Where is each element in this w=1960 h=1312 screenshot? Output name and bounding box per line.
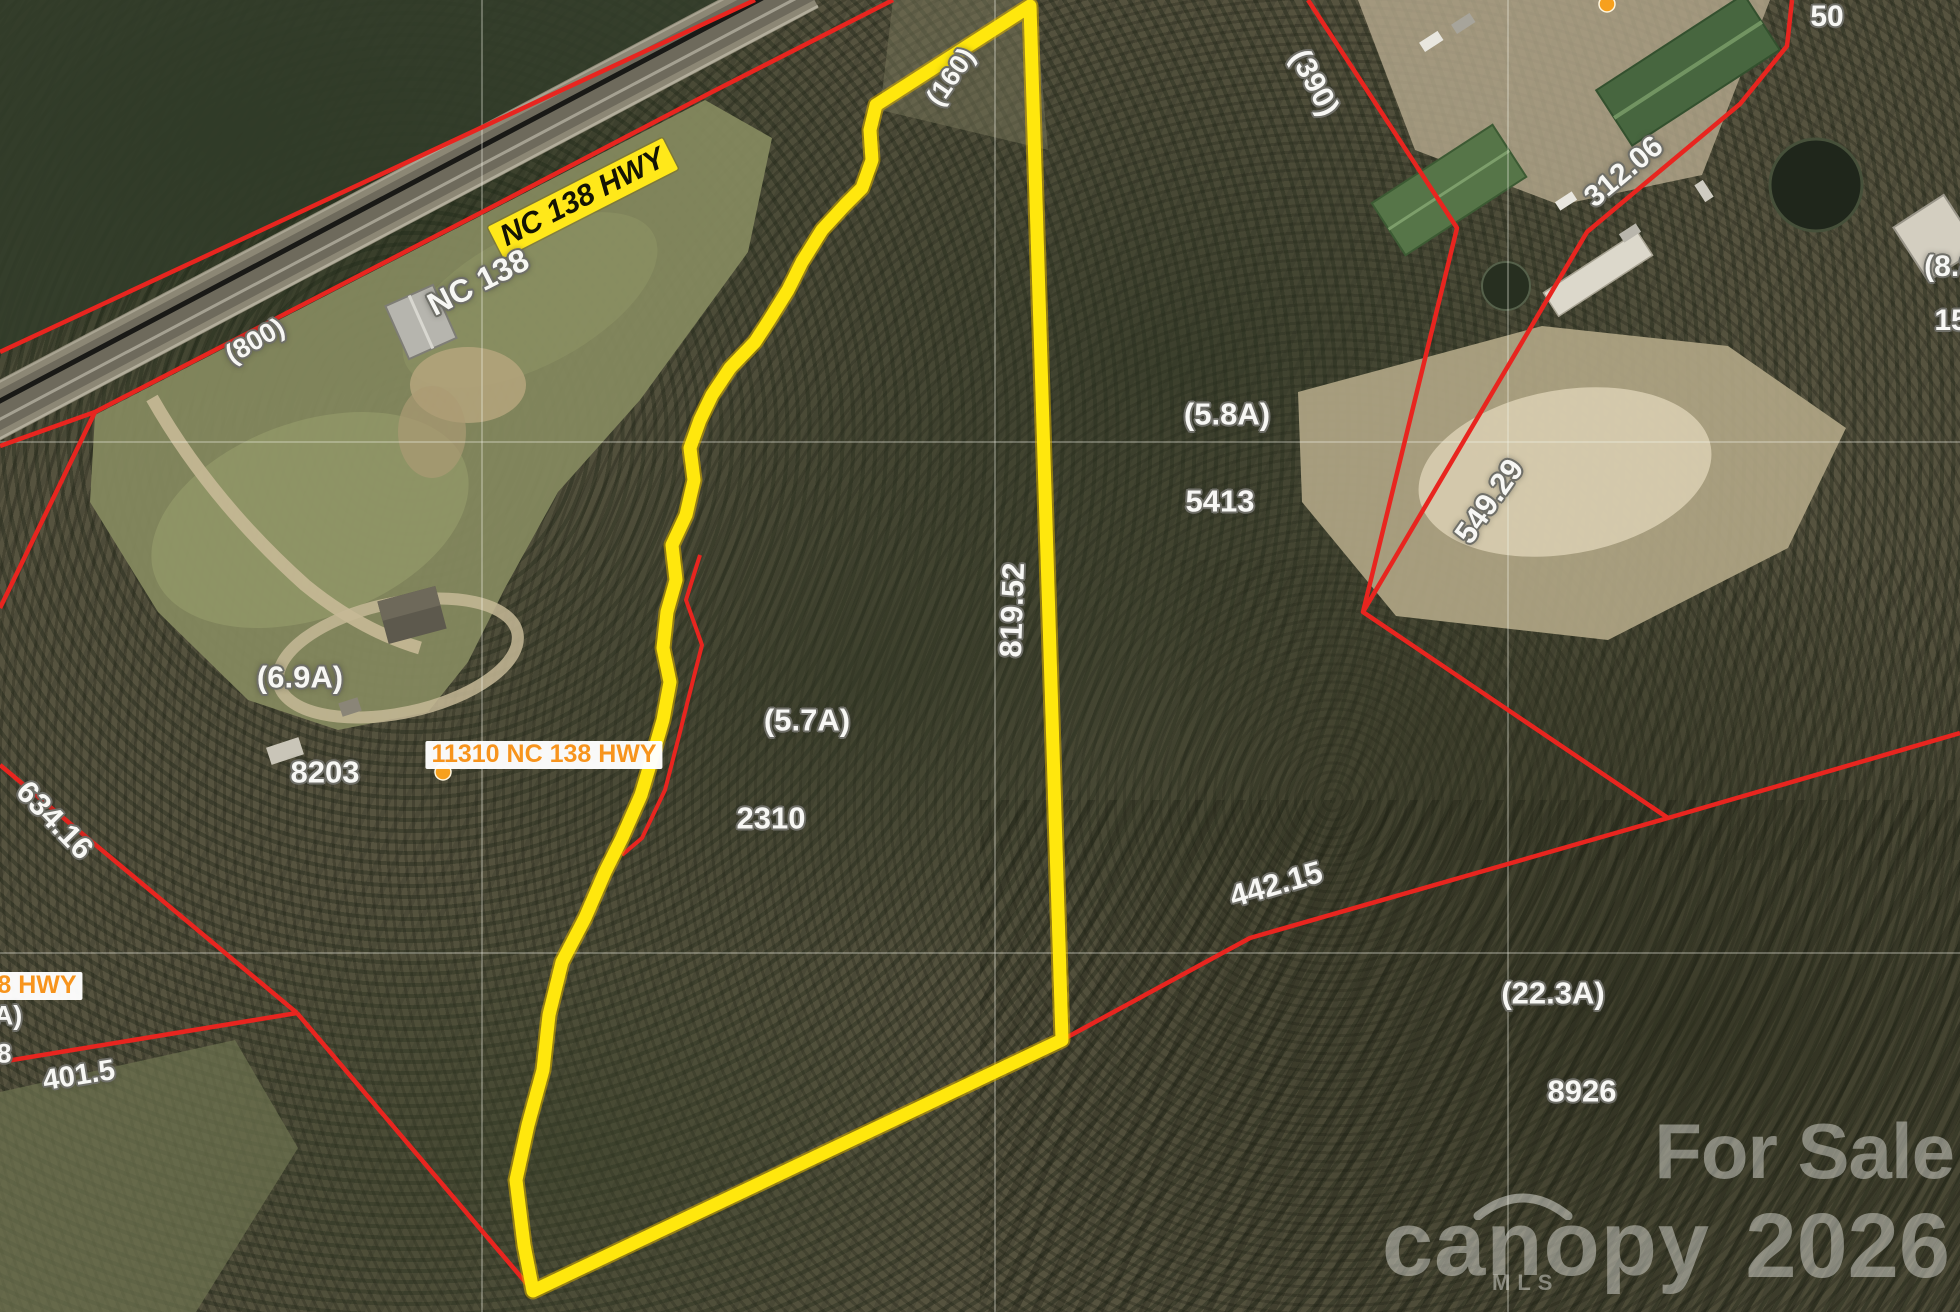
parcel-number-label-2310: 2310 [737,803,806,834]
parcel-number-label-8926: 8926 [1548,1076,1617,1107]
aerial-parcel-map: NC 138 HWY NC 138 (160) (800) (390) 312.… [0,0,1960,1312]
canopy-logo-arc-icon [1468,1178,1578,1220]
address-label-38hwy-partial: 38 HWY [0,972,83,1000]
mls-watermark-label: MLS [1492,1272,1559,1294]
dimension-label-50: 50 [1810,2,1843,32]
parcel-number-label-15-partial: 15 [1934,306,1960,336]
address-marker-dot [1599,0,1615,12]
parcel-number-label-partial-8: 8 [0,1041,12,1068]
acreage-label-22-3: (22.3A) [1501,978,1604,1009]
parcel-number-label-8203: 8203 [291,757,360,788]
acreage-label-partial-a: A) [0,1003,22,1030]
acreage-label-8-8-partial: (8.8 [1924,252,1960,282]
year-watermark: 2026 [1745,1200,1950,1292]
parcel-number-label-5413: 5413 [1186,486,1255,517]
for-sale-watermark: For Sale [1654,1112,1954,1190]
address-label-11310: 11310 NC 138 HWY [425,741,662,769]
acreage-label-5-7: (5.7A) [764,705,850,736]
dimension-label-819-52: 819.52 [995,562,1029,658]
pond [1482,262,1530,310]
acreage-label-5-8: (5.8A) [1184,399,1270,430]
acreage-label-6-9: (6.9A) [257,662,343,693]
pond [1770,139,1862,231]
